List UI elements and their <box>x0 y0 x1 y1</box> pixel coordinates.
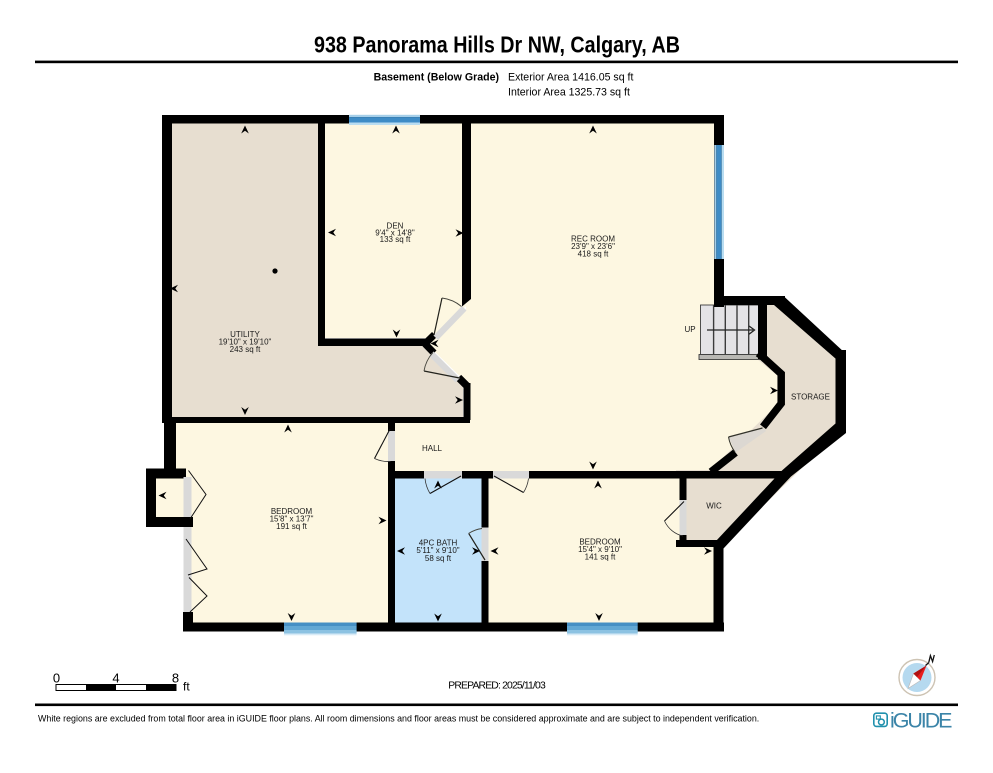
svg-text:White regions are excluded fro: White regions are excluded from total fl… <box>38 714 759 724</box>
svg-text:WIC: WIC <box>706 501 722 510</box>
svg-text:ft: ft <box>183 680 190 694</box>
svg-text:4: 4 <box>112 671 119 686</box>
svg-text:PREPARED: 2025/11/03: PREPARED: 2025/11/03 <box>448 681 546 692</box>
svg-text:Basement (Below Grade): Basement (Below Grade) <box>374 72 499 84</box>
svg-text:938 Panorama Hills Dr NW, Calg: 938 Panorama Hills Dr NW, Calgary, AB <box>314 31 680 57</box>
svg-text:Exterior Area 1416.05 sq ft: Exterior Area 1416.05 sq ft <box>508 72 633 84</box>
svg-text:191 sq ft: 191 sq ft <box>276 522 307 531</box>
svg-text:58 sq ft: 58 sq ft <box>425 554 452 563</box>
svg-text:8: 8 <box>172 671 179 686</box>
svg-text:418 sq ft: 418 sq ft <box>578 250 609 259</box>
svg-text:0: 0 <box>53 671 60 686</box>
svg-text:Interior Area 1325.73 sq ft: Interior Area 1325.73 sq ft <box>508 86 630 98</box>
svg-text:133 sq ft: 133 sq ft <box>380 235 411 244</box>
svg-text:243 sq ft: 243 sq ft <box>230 345 261 354</box>
svg-text:STORAGE: STORAGE <box>791 392 830 401</box>
svg-text:iGUIDE: iGUIDE <box>890 709 953 733</box>
svg-text:UP: UP <box>684 325 695 334</box>
svg-text:HALL: HALL <box>422 444 443 453</box>
svg-text:141 sq ft: 141 sq ft <box>585 553 616 562</box>
